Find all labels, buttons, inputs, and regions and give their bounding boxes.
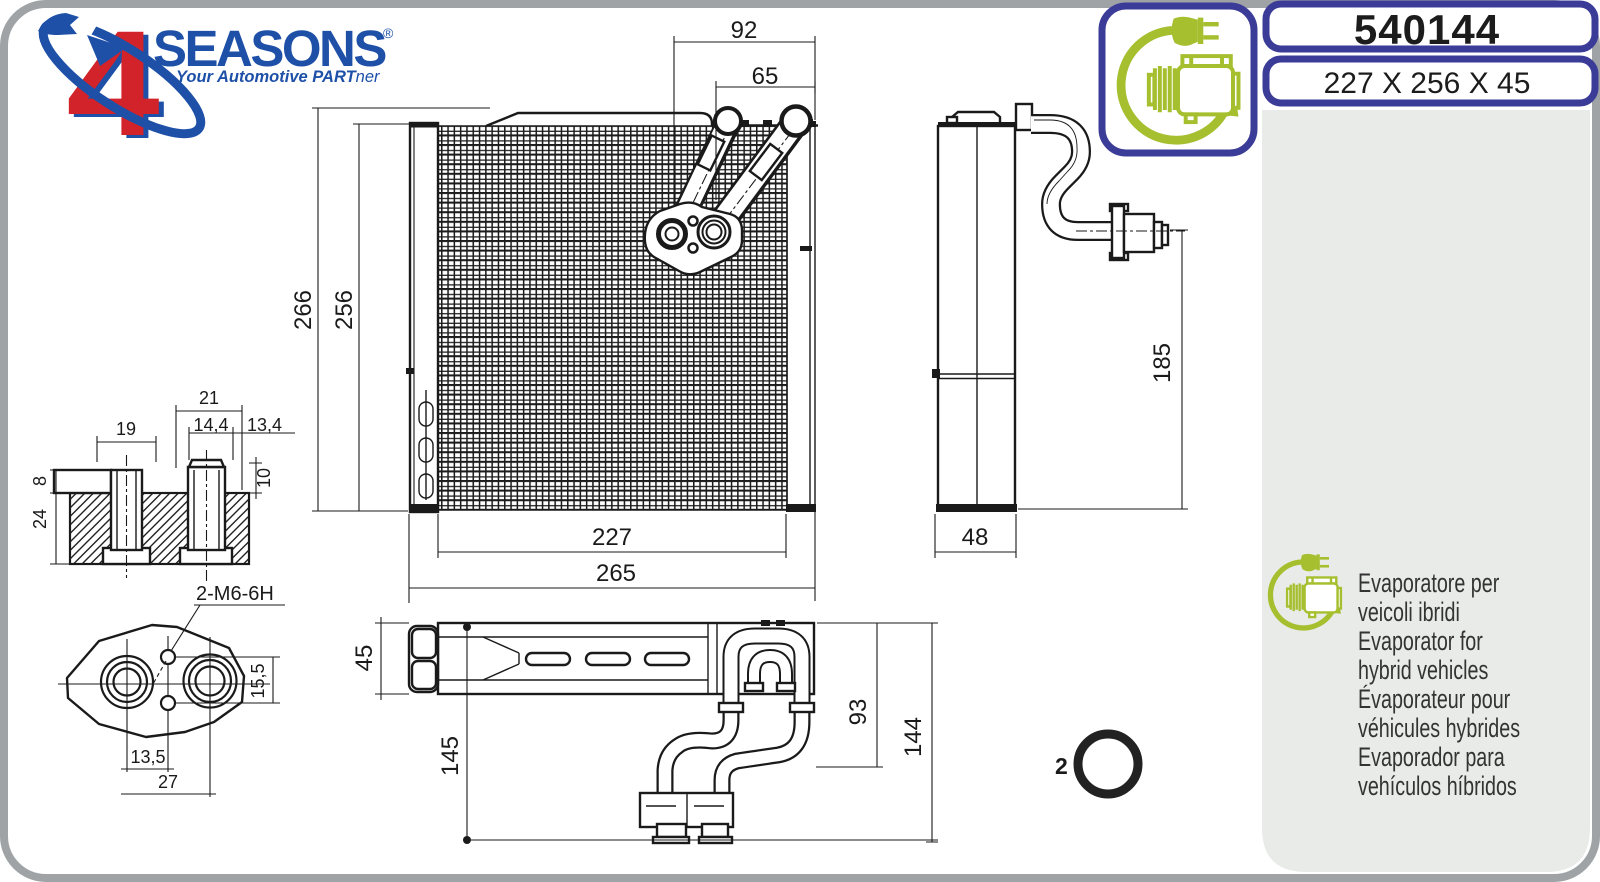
svg-text:vehículos híbridos: vehículos híbridos [1358,772,1517,802]
svg-text:®: ® [383,25,394,41]
svg-text:185: 185 [1149,343,1176,383]
svg-text:144: 144 [900,717,927,757]
svg-text:266: 266 [290,290,317,330]
svg-text:24: 24 [30,509,50,529]
svg-text:265: 265 [596,560,636,587]
svg-text:21: 21 [199,388,219,408]
svg-text:13,4: 13,4 [247,415,282,435]
svg-text:540144: 540144 [1354,6,1500,53]
svg-text:65: 65 [752,63,779,90]
svg-text:92: 92 [731,17,758,44]
svg-text:10: 10 [254,468,274,488]
svg-text:48: 48 [962,524,989,551]
svg-text:256: 256 [331,290,358,330]
svg-text:227: 227 [592,524,632,551]
svg-text:Évaporateur pour: Évaporateur pour [1358,684,1510,715]
svg-text:15,5: 15,5 [248,663,268,698]
svg-text:2: 2 [1055,753,1068,779]
svg-text:Evaporatore per: Evaporatore per [1358,569,1499,599]
svg-text:2-M6-6H: 2-M6-6H [196,583,274,605]
svg-text:27: 27 [158,772,178,792]
svg-text:14,4: 14,4 [193,415,228,435]
svg-text:veicoli ibridi: veicoli ibridi [1358,598,1460,628]
svg-text:45: 45 [351,645,378,672]
svg-text:93: 93 [845,699,872,726]
svg-text:Evaporador para: Evaporador para [1358,743,1505,773]
svg-text:19: 19 [116,419,136,439]
svg-text:Your Automotive PARTner: Your Automotive PARTner [176,68,381,86]
svg-text:227 X 256 X 45: 227 X 256 X 45 [1324,67,1531,100]
svg-text:8: 8 [30,476,50,486]
svg-text:véhicules hybrides: véhicules hybrides [1358,714,1520,744]
svg-text:13,5: 13,5 [130,747,165,767]
svg-text:Evaporator for: Evaporator for [1358,627,1483,657]
svg-text:145: 145 [437,736,464,776]
svg-text:hybrid vehicles: hybrid vehicles [1358,656,1488,686]
